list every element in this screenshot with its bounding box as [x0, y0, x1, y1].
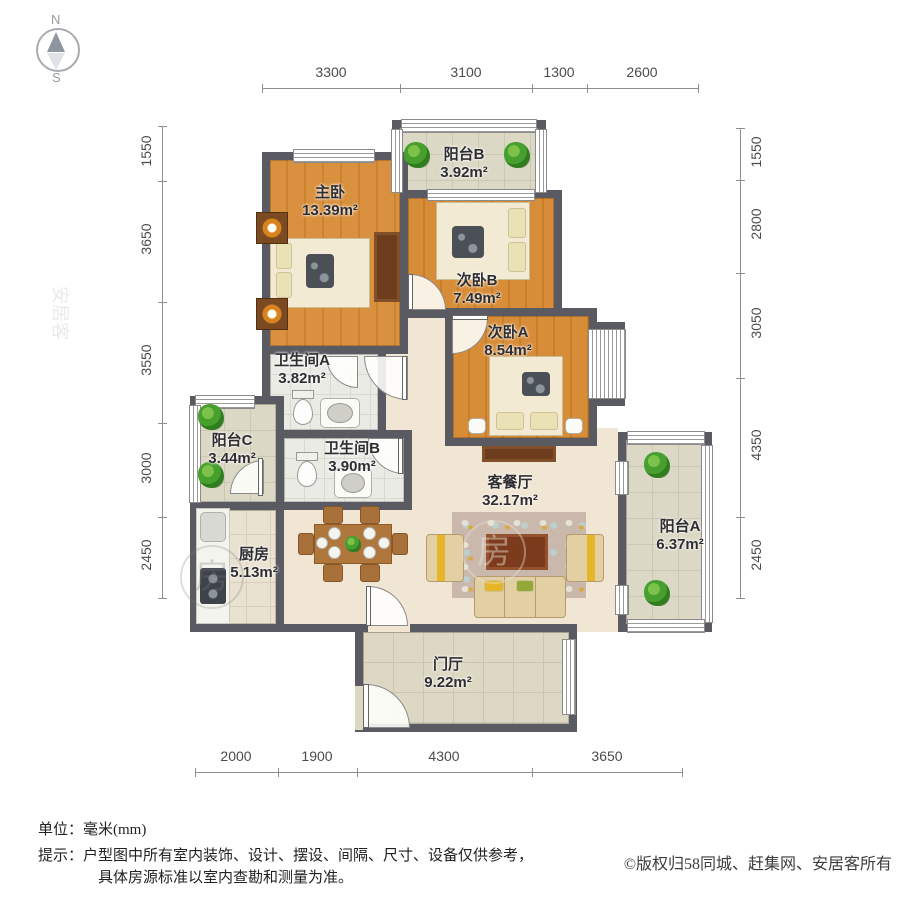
compass: N S [24, 10, 88, 86]
toilet-icon [292, 390, 314, 399]
dim-right-2: 2800 [748, 194, 764, 254]
dim-left-2: 3650 [138, 209, 154, 269]
window-foyer-right [563, 640, 575, 714]
armchair-right [566, 534, 604, 582]
pillow [496, 412, 524, 430]
door-master-leaf [402, 356, 407, 400]
toilet-bowl-icon [297, 461, 317, 487]
dim-top-2: 3100 [436, 64, 496, 80]
watermark-logo: 房 [180, 545, 244, 609]
pillow [508, 208, 526, 238]
compass-south-label: S [52, 70, 61, 85]
compass-north-label: N [51, 12, 60, 27]
room-label-foyer: 门厅9.22m² [424, 656, 472, 692]
pillow [508, 242, 526, 272]
slider-living-balcony-a-2 [616, 586, 628, 614]
window-balcony-b-right [536, 130, 546, 192]
toilet-icon [296, 452, 318, 461]
window-balcony-a-bottom [628, 620, 704, 632]
door-balcony-c-leaf [258, 458, 263, 496]
footer-tip-line2: 具体房源标准以室内查勘和测量为准。 [98, 866, 353, 887]
pillow [530, 412, 558, 430]
pillow [276, 243, 292, 269]
plant-icon [504, 142, 530, 168]
room-label-balcony-c: 阳台C3.44m² [208, 432, 256, 468]
wall-segment-bottom [274, 624, 368, 632]
footer-copyright: ©版权归58同城、赶集网、安居客所有 [624, 850, 892, 874]
toilet-bowl-icon [293, 399, 313, 425]
plant-icon [404, 142, 430, 168]
dining-chair [323, 564, 343, 582]
window-balcony-b-door [428, 190, 534, 200]
kitchen-sink-icon [200, 512, 226, 542]
room-label-balcony-a: 阳台A6.37m² [656, 518, 704, 554]
plant-icon [644, 452, 670, 478]
door-bedroom-a-leaf [452, 315, 488, 320]
wardrobe-master [374, 232, 400, 302]
plate-icon [328, 546, 341, 559]
window-balcony-b-left [392, 130, 402, 192]
room-label-master: 主卧13.39m² [302, 184, 358, 220]
room-label-bath-b: 卫生间B3.90m² [324, 440, 380, 476]
door-entry-leaf [363, 684, 369, 728]
footer-tip-line1: 提示：户型图中所有室内装饰、设计、摆设、间隔、尺寸、设备仅供参考， [38, 844, 533, 865]
armchair-left [426, 534, 464, 582]
dim-left-5: 2450 [138, 525, 154, 585]
room-label-bedroom-b: 次卧B7.49m² [453, 272, 501, 308]
dim-right-4: 4350 [748, 415, 764, 475]
room-label-bedroom-a: 次卧A8.54m² [484, 324, 532, 360]
dining-chair [323, 506, 343, 524]
watermark-text: 安居客 [48, 286, 74, 340]
door-living-foyer-leaf [366, 586, 371, 626]
dim-right-1: 1550 [748, 122, 764, 182]
blanket-bedroom-a [522, 372, 550, 396]
room-label-bath-a: 卫生间A3.82m² [274, 352, 330, 388]
room-label-balcony-b: 阳台B3.92m² [440, 146, 488, 182]
dining-chair [360, 564, 380, 582]
sink-basin-icon [341, 473, 365, 493]
plate-icon [363, 527, 376, 540]
sofa-pillow-green [516, 580, 534, 592]
nightstand-lamp-icon [256, 212, 288, 244]
window-master-top [294, 150, 374, 162]
plate-icon [363, 546, 376, 559]
table-plant-icon [345, 536, 361, 552]
nightstand [565, 418, 583, 434]
dining-chair [360, 506, 380, 524]
pillow [276, 272, 292, 298]
dim-top-1: 3300 [301, 64, 361, 80]
dim-left-3: 3550 [138, 330, 154, 390]
door-bedroom-b-leaf [408, 274, 413, 310]
dim-top-3: 1300 [529, 64, 589, 80]
dim-bottom-4: 3650 [577, 748, 637, 764]
compass-needle-north-icon [47, 32, 65, 52]
plate-icon [316, 537, 328, 549]
dim-left-1: 1550 [138, 121, 154, 181]
compass-needle-south-icon [47, 53, 65, 70]
dim-top-4: 2600 [612, 64, 672, 80]
plant-icon [198, 404, 224, 430]
floorplan-canvas: N S 3300 3100 1300 2600 2000 1900 4300 3… [0, 0, 900, 900]
slider-living-balcony-a-1 [616, 462, 628, 494]
bay-window-bedroom-a [589, 330, 625, 398]
footer-unit: 单位：毫米(mm) [38, 818, 146, 839]
room-label-living: 客餐厅32.17m² [482, 474, 538, 510]
dining-chair [298, 533, 314, 555]
dim-right-3: 3050 [748, 293, 764, 353]
dim-left-4: 3000 [138, 438, 154, 498]
bay-window-cap-bottom [589, 398, 625, 406]
opening-entry [355, 686, 363, 730]
bay-window-cap-top [589, 322, 625, 330]
sink-basin-icon [327, 403, 353, 423]
watermark-logo: 房 [462, 520, 526, 584]
blanket-master [306, 254, 334, 288]
dim-bottom-2: 1900 [287, 748, 347, 764]
nightstand-lamp-icon [256, 298, 288, 330]
door-bath-b-leaf [398, 438, 403, 474]
window-balcony-b-top [402, 120, 536, 132]
window-balcony-a-top [628, 432, 704, 444]
plate-icon [378, 537, 390, 549]
blanket-bedroom-b [452, 226, 484, 258]
tv-cabinet [482, 446, 556, 462]
plant-icon [644, 580, 670, 606]
dim-right-5: 2450 [748, 525, 764, 585]
dim-bottom-1: 2000 [206, 748, 266, 764]
plate-icon [328, 527, 341, 540]
nightstand [468, 418, 486, 434]
dim-bottom-3: 4300 [414, 748, 474, 764]
dining-chair [392, 533, 408, 555]
